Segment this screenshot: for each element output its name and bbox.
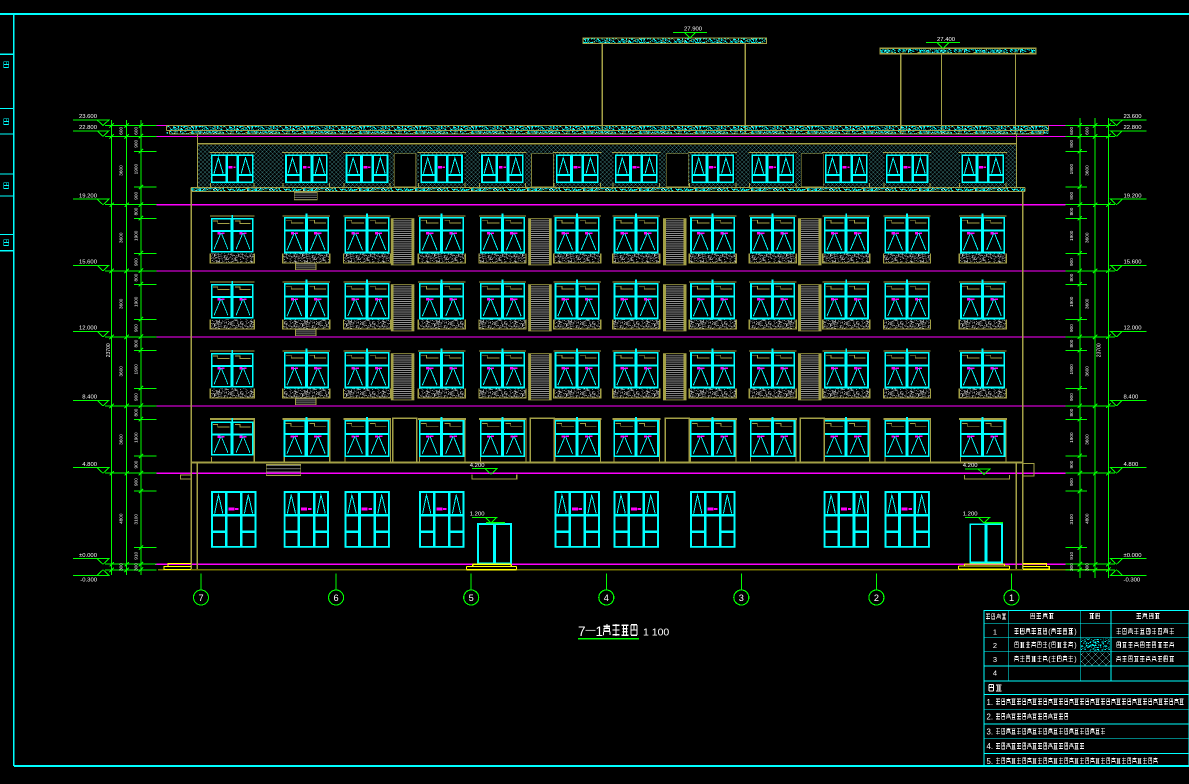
svg-text:±0.000: ±0.000 xyxy=(1124,553,1143,559)
svg-text:1900: 1900 xyxy=(1069,296,1074,307)
svg-text:3: 3 xyxy=(993,655,997,664)
svg-text:300: 300 xyxy=(1085,563,1090,571)
svg-text:22.800: 22.800 xyxy=(1124,125,1143,131)
svg-text:900: 900 xyxy=(134,460,139,468)
svg-text:27.400: 27.400 xyxy=(937,37,956,43)
svg-text:300: 300 xyxy=(134,563,139,571)
svg-text:3: 3 xyxy=(739,593,744,603)
svg-text:900: 900 xyxy=(1069,393,1074,401)
svg-text:1.: 1. xyxy=(987,698,994,707)
svg-text:7: 7 xyxy=(578,624,586,639)
svg-text:1900: 1900 xyxy=(134,230,139,241)
svg-text:4.800: 4.800 xyxy=(82,462,97,468)
svg-text:2: 2 xyxy=(993,641,997,650)
svg-text:3.: 3. xyxy=(987,727,994,736)
svg-text:1: 1 xyxy=(596,624,604,639)
svg-text:2: 2 xyxy=(874,593,879,603)
svg-text:900: 900 xyxy=(134,192,139,200)
svg-text:4.800: 4.800 xyxy=(1124,462,1139,468)
svg-text:3600: 3600 xyxy=(119,298,124,309)
svg-text:3600: 3600 xyxy=(119,366,124,377)
svg-text:): ) xyxy=(1074,627,1076,636)
svg-text:1 100: 1 100 xyxy=(643,627,669,639)
svg-text:800: 800 xyxy=(134,408,139,416)
svg-text:3100: 3100 xyxy=(1069,514,1074,525)
svg-text:800: 800 xyxy=(1069,273,1074,281)
svg-text:4.: 4. xyxy=(987,742,994,751)
svg-text:15.600: 15.600 xyxy=(1124,260,1143,266)
svg-text:1900: 1900 xyxy=(1069,364,1074,375)
svg-text:23.600: 23.600 xyxy=(1124,114,1143,120)
svg-text:1900: 1900 xyxy=(134,364,139,375)
svg-text:900: 900 xyxy=(1069,258,1074,266)
svg-text:—: — xyxy=(586,625,596,636)
svg-text:800: 800 xyxy=(134,339,139,347)
svg-text:600: 600 xyxy=(119,127,124,135)
svg-text:3600: 3600 xyxy=(119,232,124,243)
svg-text:910: 910 xyxy=(1069,552,1074,560)
svg-text:4800: 4800 xyxy=(1085,513,1090,524)
svg-text:1.200: 1.200 xyxy=(963,512,978,518)
svg-text:900: 900 xyxy=(1069,324,1074,332)
svg-text:900: 900 xyxy=(134,393,139,401)
svg-text:23700: 23700 xyxy=(1097,343,1103,357)
svg-text:1900: 1900 xyxy=(1069,230,1074,241)
svg-text:2.: 2. xyxy=(987,713,994,722)
svg-text:3600: 3600 xyxy=(1085,434,1090,445)
svg-text:23700: 23700 xyxy=(106,343,112,357)
svg-text:19.200: 19.200 xyxy=(1124,194,1143,200)
svg-text:±0.000: ±0.000 xyxy=(79,553,98,559)
svg-text:12.000: 12.000 xyxy=(79,326,98,332)
svg-text:910: 910 xyxy=(134,552,139,560)
svg-text:1.200: 1.200 xyxy=(470,512,485,518)
svg-text:8.400: 8.400 xyxy=(1124,395,1139,401)
svg-text:-0.300: -0.300 xyxy=(80,577,97,583)
svg-text:1900: 1900 xyxy=(1069,163,1074,174)
svg-text:900: 900 xyxy=(1069,140,1074,148)
svg-text:23.600: 23.600 xyxy=(79,114,98,120)
svg-text:1900: 1900 xyxy=(134,432,139,443)
svg-text:5.: 5. xyxy=(987,757,994,766)
svg-text:800: 800 xyxy=(1069,339,1074,347)
svg-text:3600: 3600 xyxy=(119,434,124,445)
svg-text:8.400: 8.400 xyxy=(82,395,97,401)
svg-text:4.200: 4.200 xyxy=(963,463,978,469)
svg-text:900: 900 xyxy=(134,258,139,266)
svg-text:600: 600 xyxy=(134,127,139,135)
svg-text:22.800: 22.800 xyxy=(79,125,98,131)
svg-text:4: 4 xyxy=(993,669,997,678)
svg-text:4: 4 xyxy=(604,593,609,603)
svg-text:900: 900 xyxy=(1069,478,1074,486)
svg-text:): ) xyxy=(1074,655,1076,664)
svg-text:800: 800 xyxy=(1069,408,1074,416)
svg-text:1900: 1900 xyxy=(134,296,139,307)
svg-text:900: 900 xyxy=(134,140,139,148)
svg-text:5: 5 xyxy=(469,593,474,603)
svg-text:300: 300 xyxy=(119,563,124,571)
svg-text:600: 600 xyxy=(1069,127,1074,135)
svg-text:1: 1 xyxy=(993,628,997,637)
svg-text:1: 1 xyxy=(1009,593,1014,603)
svg-text:3600: 3600 xyxy=(1085,165,1090,176)
svg-text:3600: 3600 xyxy=(1085,366,1090,377)
svg-text:4.200: 4.200 xyxy=(470,463,485,469)
svg-text:1900: 1900 xyxy=(134,163,139,174)
svg-text:600: 600 xyxy=(1085,127,1090,135)
svg-text:-0.300: -0.300 xyxy=(1124,577,1141,583)
svg-text:3600: 3600 xyxy=(1085,298,1090,309)
svg-text:3600: 3600 xyxy=(1085,232,1090,243)
svg-text:15.600: 15.600 xyxy=(79,260,98,266)
svg-text:800: 800 xyxy=(134,207,139,215)
svg-text:27.900: 27.900 xyxy=(684,27,703,33)
svg-text:300: 300 xyxy=(1069,563,1074,571)
svg-text:7: 7 xyxy=(198,593,203,603)
svg-text:3600: 3600 xyxy=(119,165,124,176)
svg-text:800: 800 xyxy=(134,273,139,281)
svg-text:800: 800 xyxy=(1069,207,1074,215)
svg-text:4800: 4800 xyxy=(119,513,124,524)
svg-text:1900: 1900 xyxy=(1069,432,1074,443)
svg-text:19.200: 19.200 xyxy=(79,194,98,200)
svg-text:900: 900 xyxy=(134,324,139,332)
svg-text:900: 900 xyxy=(1069,192,1074,200)
svg-text:6: 6 xyxy=(334,593,339,603)
svg-text:900: 900 xyxy=(1069,460,1074,468)
svg-text:): ) xyxy=(1074,641,1076,650)
svg-text:12.000: 12.000 xyxy=(1124,326,1143,332)
svg-text:3100: 3100 xyxy=(134,514,139,525)
svg-text:900: 900 xyxy=(134,478,139,486)
